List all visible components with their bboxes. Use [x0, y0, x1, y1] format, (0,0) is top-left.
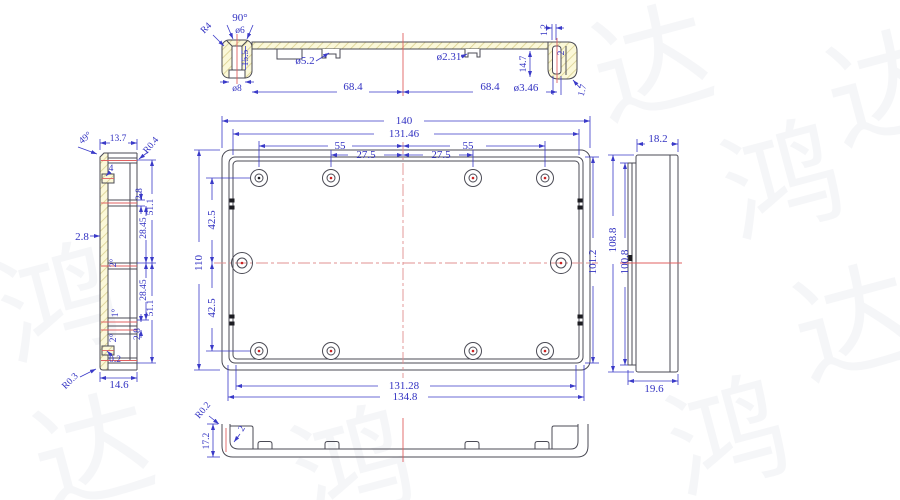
bottom-tab — [535, 442, 549, 450]
top-section-view: 90° R4 ø6 15.5 ø8 ø5.2 ø2.31 68.4 68.4 ø… — [199, 12, 589, 98]
dim-4: 4 — [109, 164, 114, 174]
dim-146: 14.6 — [109, 379, 129, 391]
dim-172: 17.2 — [202, 432, 212, 449]
hole — [251, 343, 268, 360]
watermark-char: 达 — [780, 247, 900, 404]
hole — [537, 343, 554, 360]
dim-147: 14.7 — [519, 55, 529, 72]
dim-275-left: 27.5 — [356, 149, 376, 161]
dim-wall-28: 2.8 — [75, 231, 89, 243]
top-flange — [104, 153, 137, 163]
hole — [537, 170, 554, 187]
right-body-outline — [636, 155, 678, 372]
dim-dia346: ø3.46 — [514, 82, 539, 94]
hole — [465, 343, 482, 360]
bottom-tab — [258, 442, 272, 450]
dim-511-bot: 51.1 — [146, 299, 156, 316]
dim-dia52: ø5.2 — [295, 55, 314, 67]
dim-r03: R0.3 — [61, 371, 81, 391]
hole — [251, 170, 268, 187]
dim-12: 1.2 — [540, 24, 550, 36]
bottom-tab — [465, 442, 479, 450]
dim-angle-1: 1° — [110, 309, 121, 318]
dim-depth-155: 15.5 — [241, 49, 251, 66]
dim-2: 2 — [557, 50, 567, 55]
dim-2845-top: 28.45 — [139, 217, 149, 239]
dim-17: 1.7 — [577, 83, 590, 97]
dim-110: 110 — [193, 254, 205, 271]
dim-1012: 101.2 — [587, 250, 599, 275]
dim-137: 13.7 — [110, 134, 127, 144]
plate-inner-frame-1 — [229, 157, 583, 363]
dim-275-right: 27.5 — [431, 149, 451, 161]
dim-1008: 100.8 — [619, 249, 631, 274]
dim-1088: 108.8 — [607, 227, 619, 252]
dim-28-top: 2.8 — [135, 188, 145, 200]
left-wall-section — [100, 153, 108, 370]
screw-channel-2 — [465, 49, 480, 57]
dim-angle-49: 49° — [77, 129, 94, 146]
engineering-drawing: 达 鸿 鸿 达 鸿 鸿 达 达 — [0, 0, 900, 500]
plate-inner-frame-2 — [233, 161, 579, 359]
hole — [323, 170, 340, 187]
watermark-char: 鸿 — [279, 390, 427, 500]
dim-196: 19.6 — [644, 383, 664, 395]
edge-clips — [230, 199, 583, 326]
top-wall-section — [252, 42, 548, 49]
front-view: 140 131.46 55 27.5 27.5 55 110 42.5 42.5… — [193, 115, 599, 403]
dim-511-top: 51.1 — [146, 198, 156, 215]
dim-r02: R0.2 — [194, 400, 214, 421]
dim-182: 18.2 — [648, 133, 667, 145]
watermark-char: 达 — [579, 0, 727, 144]
dim-140: 140 — [396, 115, 413, 127]
watermark: 达 鸿 鸿 达 鸿 鸿 达 达 — [0, 0, 900, 500]
screw-channel-1 — [322, 49, 340, 58]
side-hole — [232, 253, 253, 274]
dim-02: 0.2 — [109, 355, 121, 365]
right-section-view: 18.2 108.8 100.8 19.6 — [607, 133, 682, 395]
dim-1348: 134.8 — [393, 391, 418, 403]
dim-dia6: ø6 — [235, 26, 245, 36]
dim-425-top: 42.5 — [206, 210, 218, 230]
dim-684-right: 68.4 — [480, 81, 500, 93]
dim-dia231: ø2.31 — [437, 51, 462, 63]
dim-55-right: 55 — [463, 140, 475, 152]
cad-page: 达 鸿 鸿 达 鸿 鸿 达 达 — [0, 0, 900, 500]
screw-holes — [232, 170, 572, 360]
watermark-char: 达 — [20, 376, 168, 500]
dim-425-bot: 42.5 — [206, 298, 218, 318]
dim-dia8: ø8 — [232, 84, 242, 94]
dim-2845-bot: 28.45 — [139, 279, 149, 301]
hole — [465, 170, 482, 187]
dim-55-left: 55 — [335, 140, 347, 152]
dim-684-left: 68.4 — [343, 81, 363, 93]
plate-outline — [222, 150, 590, 370]
dim-r4: R4 — [199, 21, 214, 36]
bottom-right-block — [552, 426, 578, 449]
hole — [323, 343, 340, 360]
dim-angle-2-low: 2° — [108, 334, 119, 343]
dim-r04: R0.4 — [142, 135, 162, 156]
dim-angle-2-mid: 2° — [108, 259, 119, 268]
dim-28-bot: 2.8 — [133, 328, 143, 340]
dim-13146: 131.46 — [389, 128, 420, 140]
dim-angle-90: 90° — [232, 12, 247, 24]
